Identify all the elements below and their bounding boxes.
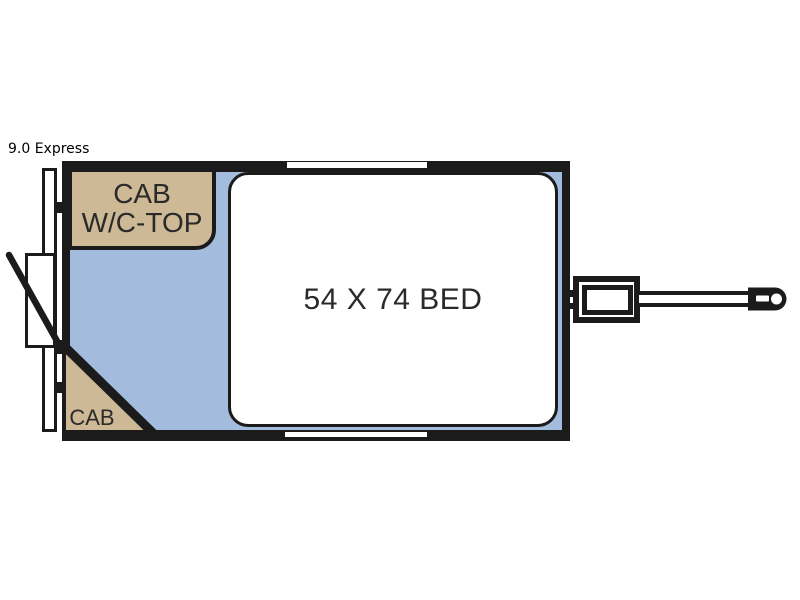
tongue-storage-box-inner [582,285,633,315]
tongue-drawbar [639,291,751,307]
tongue-storage-box [573,276,640,323]
bottom-wall-vent [285,432,427,437]
top-wall-vent [287,162,427,168]
coupler-ball-socket [771,294,782,305]
hitch-coupler [748,288,787,311]
floorplan-canvas: 9.0 Express CAB W/C-TOP 54 X 74 BED CAB [0,0,800,600]
coupler-latch-dash [756,296,769,302]
model-title: 9.0 Express [8,141,89,157]
doorway-post [55,340,69,354]
entry-door-leaf [25,253,56,348]
bed: 54 X 74 BED [228,172,558,427]
trailer-body: CAB W/C-TOP 54 X 74 BED CAB [62,161,570,441]
bed-label: 54 X 74 BED [304,283,483,317]
corner-cabinet-label: CAB [66,405,118,431]
corner-cabinet-shape [62,161,232,441]
